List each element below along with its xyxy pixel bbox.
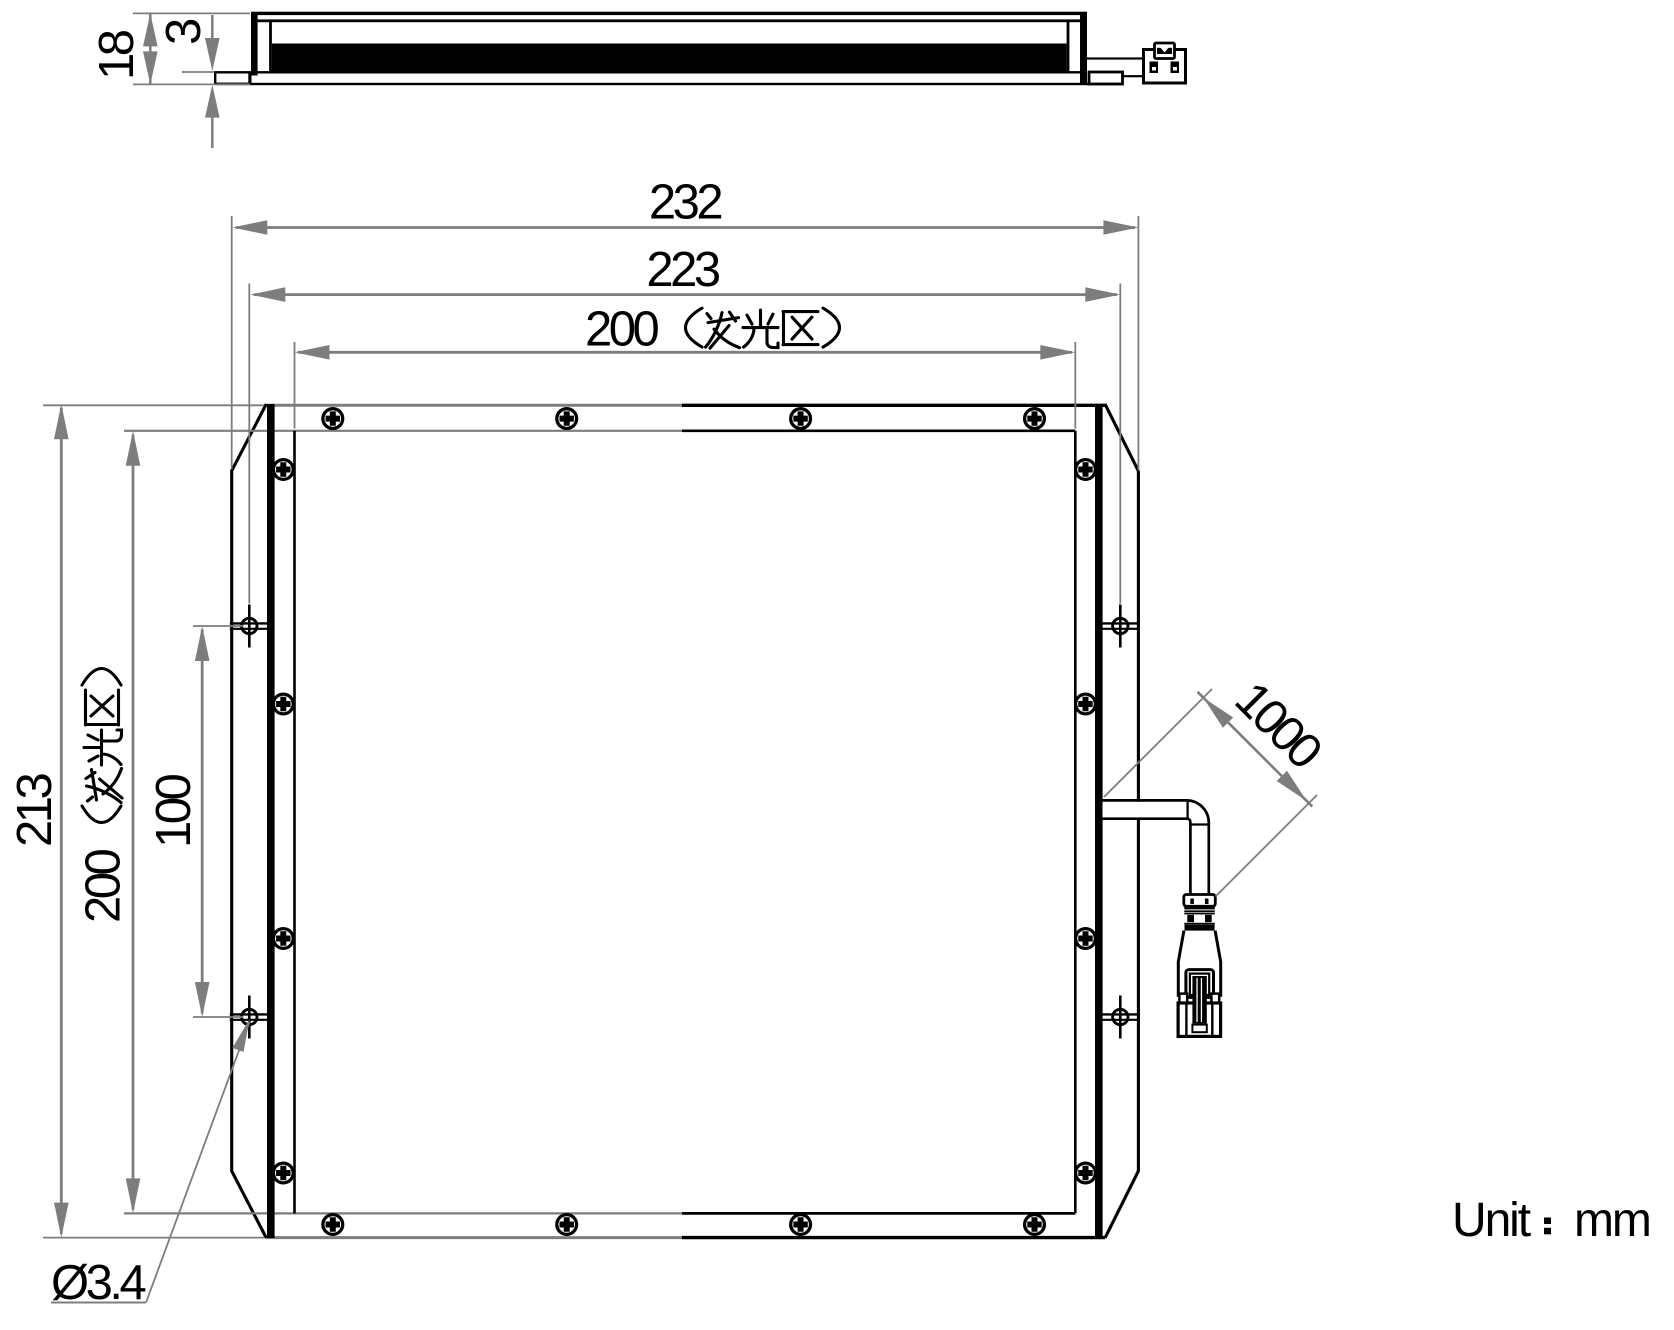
svg-text:3: 3 xyxy=(157,19,211,45)
svg-text:Unit: Unit xyxy=(1452,1194,1531,1247)
svg-text:mm: mm xyxy=(1574,1194,1650,1247)
svg-text:18: 18 xyxy=(90,30,144,80)
svg-text:213: 213 xyxy=(8,773,62,847)
svg-text:223: 223 xyxy=(646,243,720,297)
svg-text:232: 232 xyxy=(649,176,722,230)
svg-text:100: 100 xyxy=(147,774,201,848)
svg-text:Ø3.4: Ø3.4 xyxy=(51,1256,145,1310)
